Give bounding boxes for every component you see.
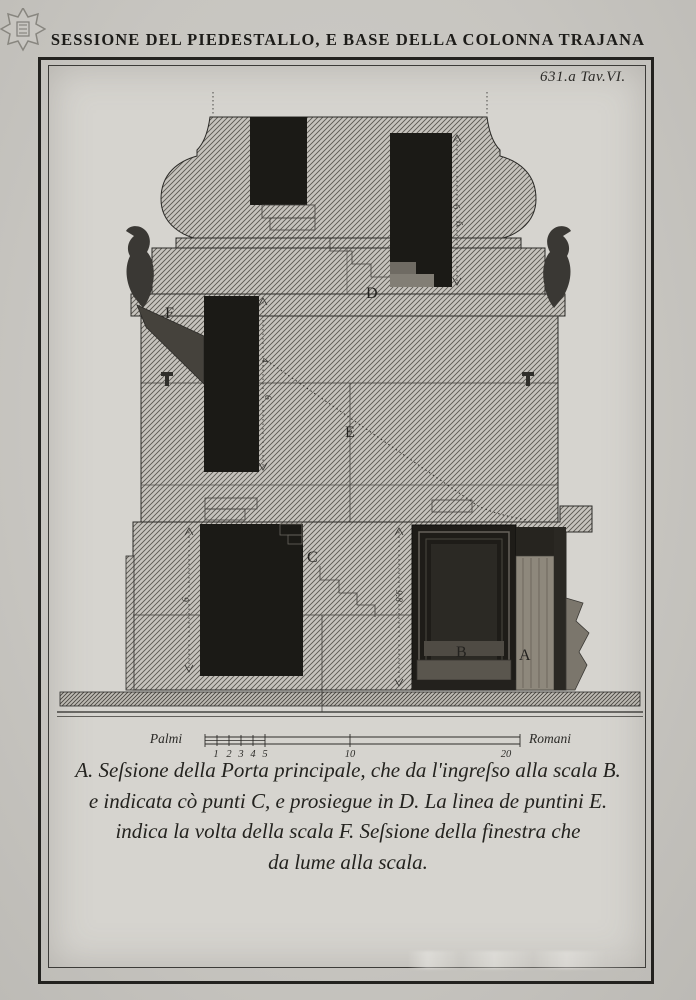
ground-band — [60, 692, 640, 706]
scale-right-label: Romani — [528, 731, 571, 746]
dim-mark-4: 6 — [262, 395, 272, 400]
base-moulding-left — [126, 556, 134, 690]
cornice-band — [131, 294, 565, 316]
faint-watermark — [408, 951, 648, 969]
label-C: C — [307, 549, 318, 566]
lower-left-opening — [200, 524, 303, 676]
label-F: F — [165, 305, 174, 322]
caption-line-4: da lume alla scala. — [55, 847, 641, 878]
main-door-section — [412, 525, 589, 690]
upper-left-shaft-opening — [250, 117, 307, 205]
dim-mark-3: 4 — [259, 358, 269, 363]
broken-stone-edge — [566, 598, 589, 690]
engraving-photo: SESSIONE DEL PIEDESTALLO, E BASE DELLA C… — [0, 0, 696, 1000]
cap-plinth-band — [176, 238, 521, 248]
middle-stair-shaft — [204, 296, 259, 472]
label-B: B — [456, 644, 467, 661]
plate-caption: A. Seſsione della Porta principale, che … — [55, 755, 641, 877]
scale-left-label: Palmi — [149, 731, 182, 746]
caption-line-2: e indicata cò punti C, e prosiegue in D.… — [55, 786, 641, 817]
dim-mark-6: 9.8 — [393, 590, 403, 602]
caption-line-3: indica la volta della scala F. Seſsione … — [55, 816, 641, 847]
eagle-sculpture-left — [126, 226, 154, 308]
eagle-sculpture-right — [543, 226, 571, 308]
label-D: D — [366, 285, 378, 302]
label-E: E — [345, 424, 355, 441]
dim-mark-5: 9 — [179, 597, 189, 602]
upper-die — [152, 248, 545, 296]
column-base-cap — [161, 117, 536, 238]
jamb-shadow-strip — [554, 527, 566, 690]
pier-shadow-band — [516, 527, 554, 556]
label-A: A — [519, 647, 531, 664]
window-pier — [516, 556, 554, 690]
caption-line-1: A. Seſsione della Porta principale, che … — [55, 755, 641, 786]
